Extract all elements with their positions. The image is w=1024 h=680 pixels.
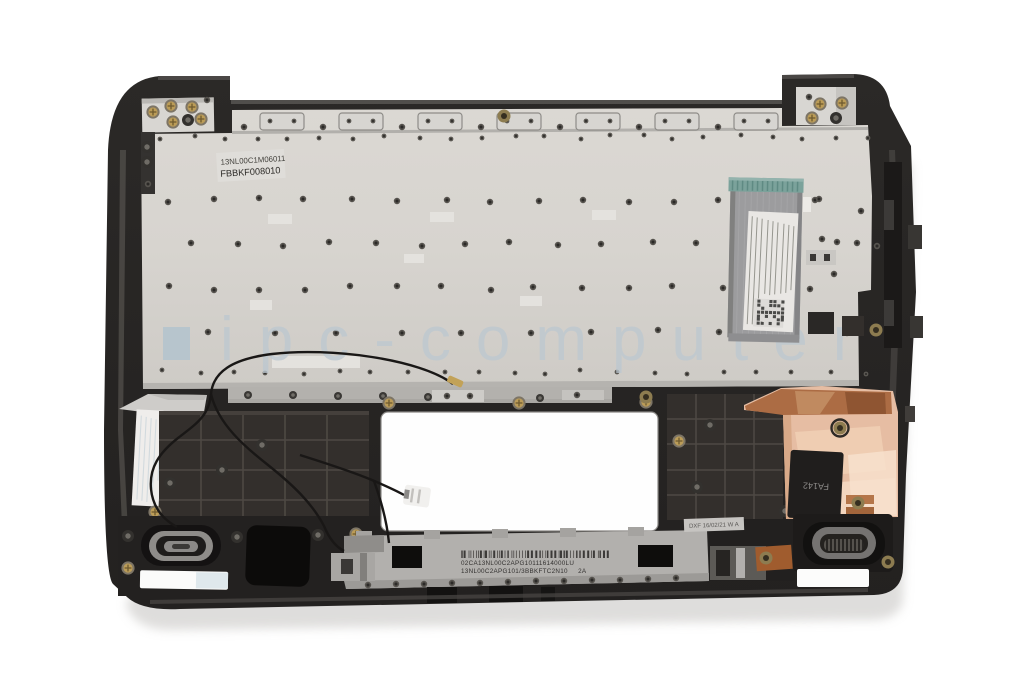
- svg-text:FA142: FA142: [803, 480, 830, 491]
- svg-text:02CA13NL00C2APG10111614000LU: 02CA13NL00C2APG10111614000LU: [461, 560, 574, 567]
- svg-text:13NL00C2APG101/3BBKFTC2N10: 13NL00C2APG101/3BBKFTC2N10 2A: [461, 568, 587, 575]
